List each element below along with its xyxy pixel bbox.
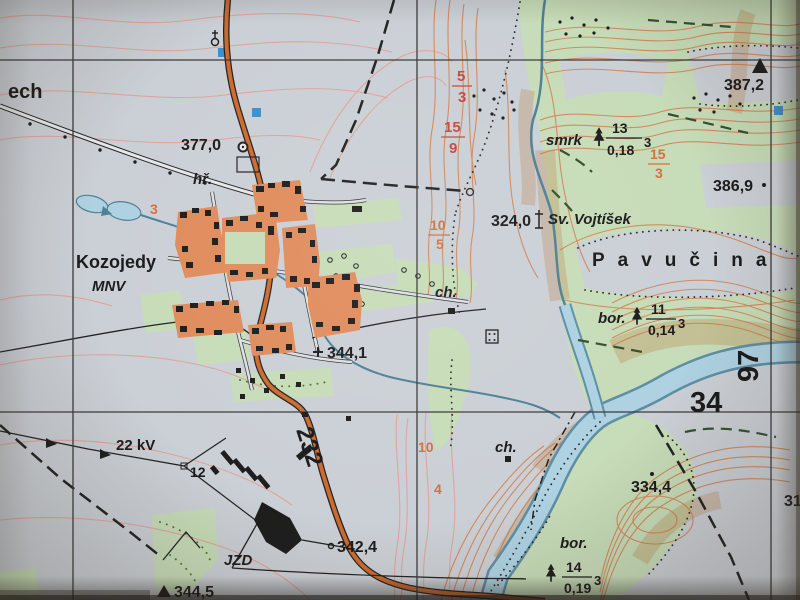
stand-species-bor: bor. [560, 535, 588, 552]
stand-diameter: 0,18 [607, 142, 634, 158]
grid-number-north: 34 [690, 387, 722, 419]
pole-number: 12 [190, 464, 206, 480]
map-canvas: ech 377,0 hř. Kozojedy MNV 344,1 ch. ch.… [0, 0, 800, 600]
stand-diameter: 0,14 [648, 322, 675, 338]
partial-place-name: ech [8, 81, 42, 103]
contour-fraction-num: 15 [444, 119, 461, 136]
town-name: Kozojedy [76, 252, 156, 272]
stand-height: 13 [612, 120, 628, 136]
cottage-label-1: ch. [435, 284, 457, 301]
stand-height: 14 [566, 559, 582, 575]
town-office-label: MNV [92, 278, 127, 295]
water-feature-icon [252, 108, 261, 117]
spot-height-342: 342,4 [337, 539, 377, 556]
contour-value: 10 [418, 439, 434, 455]
farm-label: JZD [224, 552, 253, 569]
contour-fraction-den: 3 [655, 165, 663, 181]
contour-fraction-num: 15 [650, 146, 666, 162]
stand-species-smrk: smrk [546, 132, 583, 149]
contour-fraction-den: 3 [458, 89, 466, 106]
spot-height-386: 386,9 [713, 178, 753, 195]
stand-spacing: 3 [594, 573, 601, 588]
spot-height-344-1: 344,1 [327, 345, 367, 362]
contour-fraction-num: 10 [430, 217, 446, 233]
cemetery-label: hř. [193, 171, 212, 188]
stand-species-bor: bor. [598, 310, 626, 327]
stand-height: 11 [651, 301, 666, 317]
contour-fraction-den: 5 [436, 236, 444, 252]
water-feature-icon [774, 106, 783, 115]
spot-height-377: 377,0 [181, 137, 221, 154]
contour-value: 3 [150, 201, 158, 217]
stand-diameter: 0,19 [564, 580, 591, 596]
forest-name: Pavučina [592, 250, 779, 271]
spot-height-334: 334,4 [631, 479, 671, 496]
chapel-name: Sv. Vojtíšek [548, 211, 631, 228]
contour-fraction-den: 9 [449, 140, 457, 157]
cottage-label-2: ch. [495, 439, 517, 456]
topographic-map-photo: ech 377,0 hř. Kozojedy MNV 344,1 ch. ch.… [0, 0, 800, 600]
stand-spacing: 3 [678, 316, 685, 331]
contour-value: 4 [434, 481, 442, 497]
power-line-label: 22 kV [116, 437, 155, 454]
spot-height-387: 387,2 [724, 77, 764, 94]
spot-height-324: 324,0 [491, 213, 531, 230]
grid-number-east: 97 [733, 350, 765, 382]
spot-height-dot [650, 472, 654, 476]
spot-height-dot [762, 183, 766, 187]
contour-fraction-num: 5 [457, 68, 465, 85]
